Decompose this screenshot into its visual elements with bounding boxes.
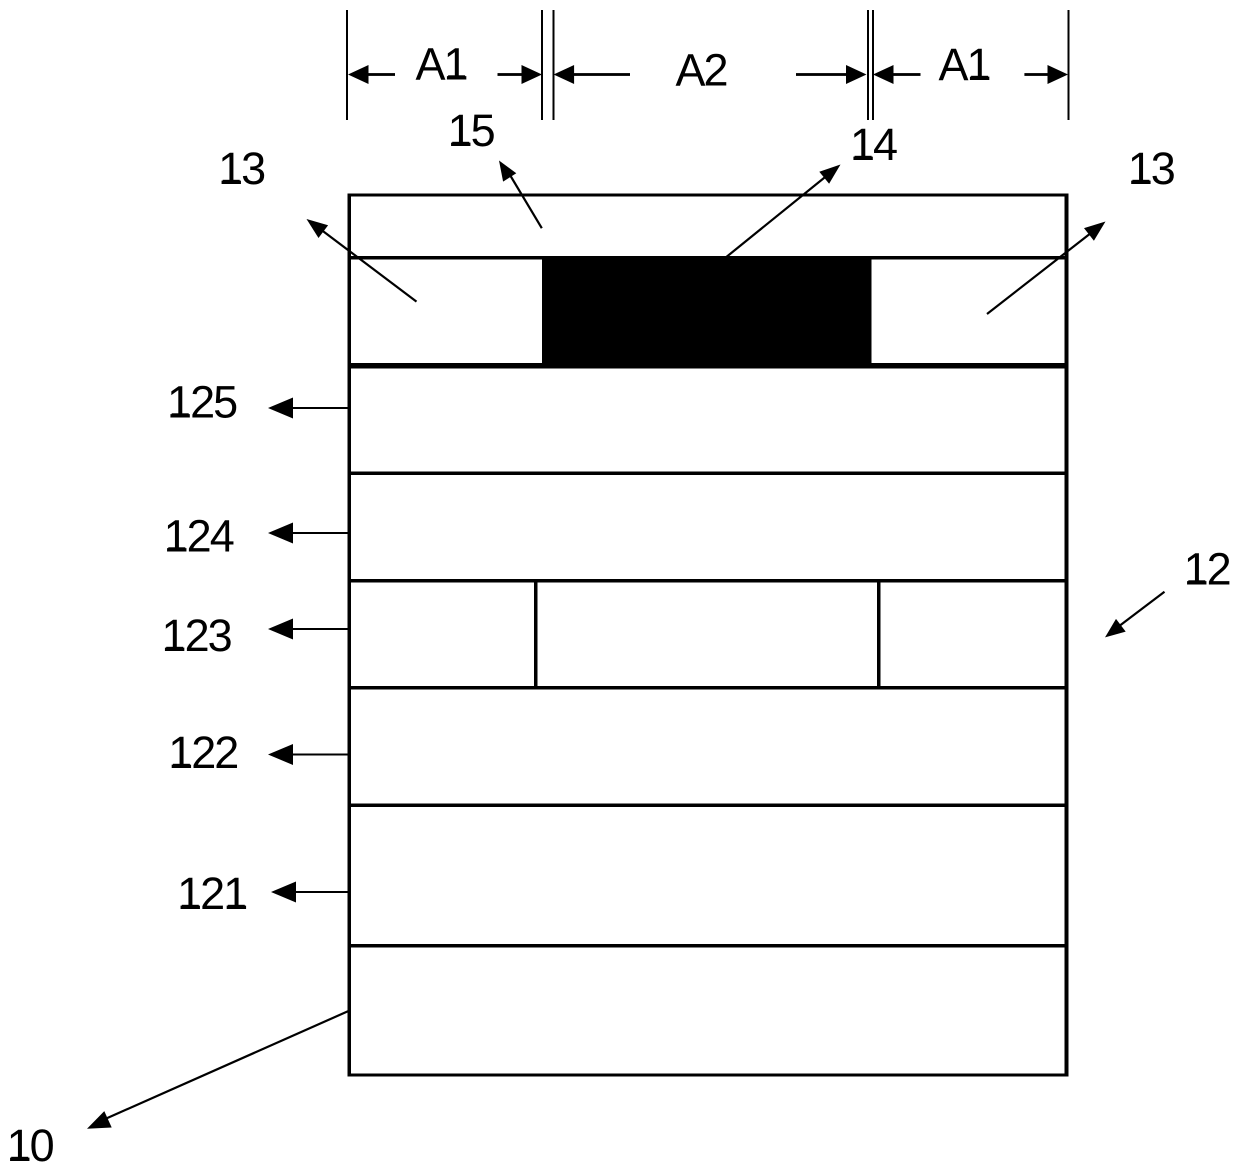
- svg-text:14: 14: [850, 119, 897, 170]
- svg-text:A2: A2: [675, 45, 726, 96]
- svg-text:12: 12: [1184, 544, 1230, 595]
- svg-text:125: 125: [167, 377, 237, 428]
- svg-text:123: 123: [162, 610, 232, 661]
- svg-text:13: 13: [218, 143, 265, 194]
- svg-text:10: 10: [7, 1120, 54, 1171]
- svg-text:A1: A1: [938, 39, 989, 90]
- svg-text:121: 121: [177, 868, 246, 919]
- svg-text:A1: A1: [415, 39, 466, 90]
- svg-text:15: 15: [448, 105, 495, 156]
- svg-text:13: 13: [1128, 143, 1175, 194]
- svg-text:122: 122: [168, 727, 237, 778]
- svg-text:124: 124: [164, 511, 234, 562]
